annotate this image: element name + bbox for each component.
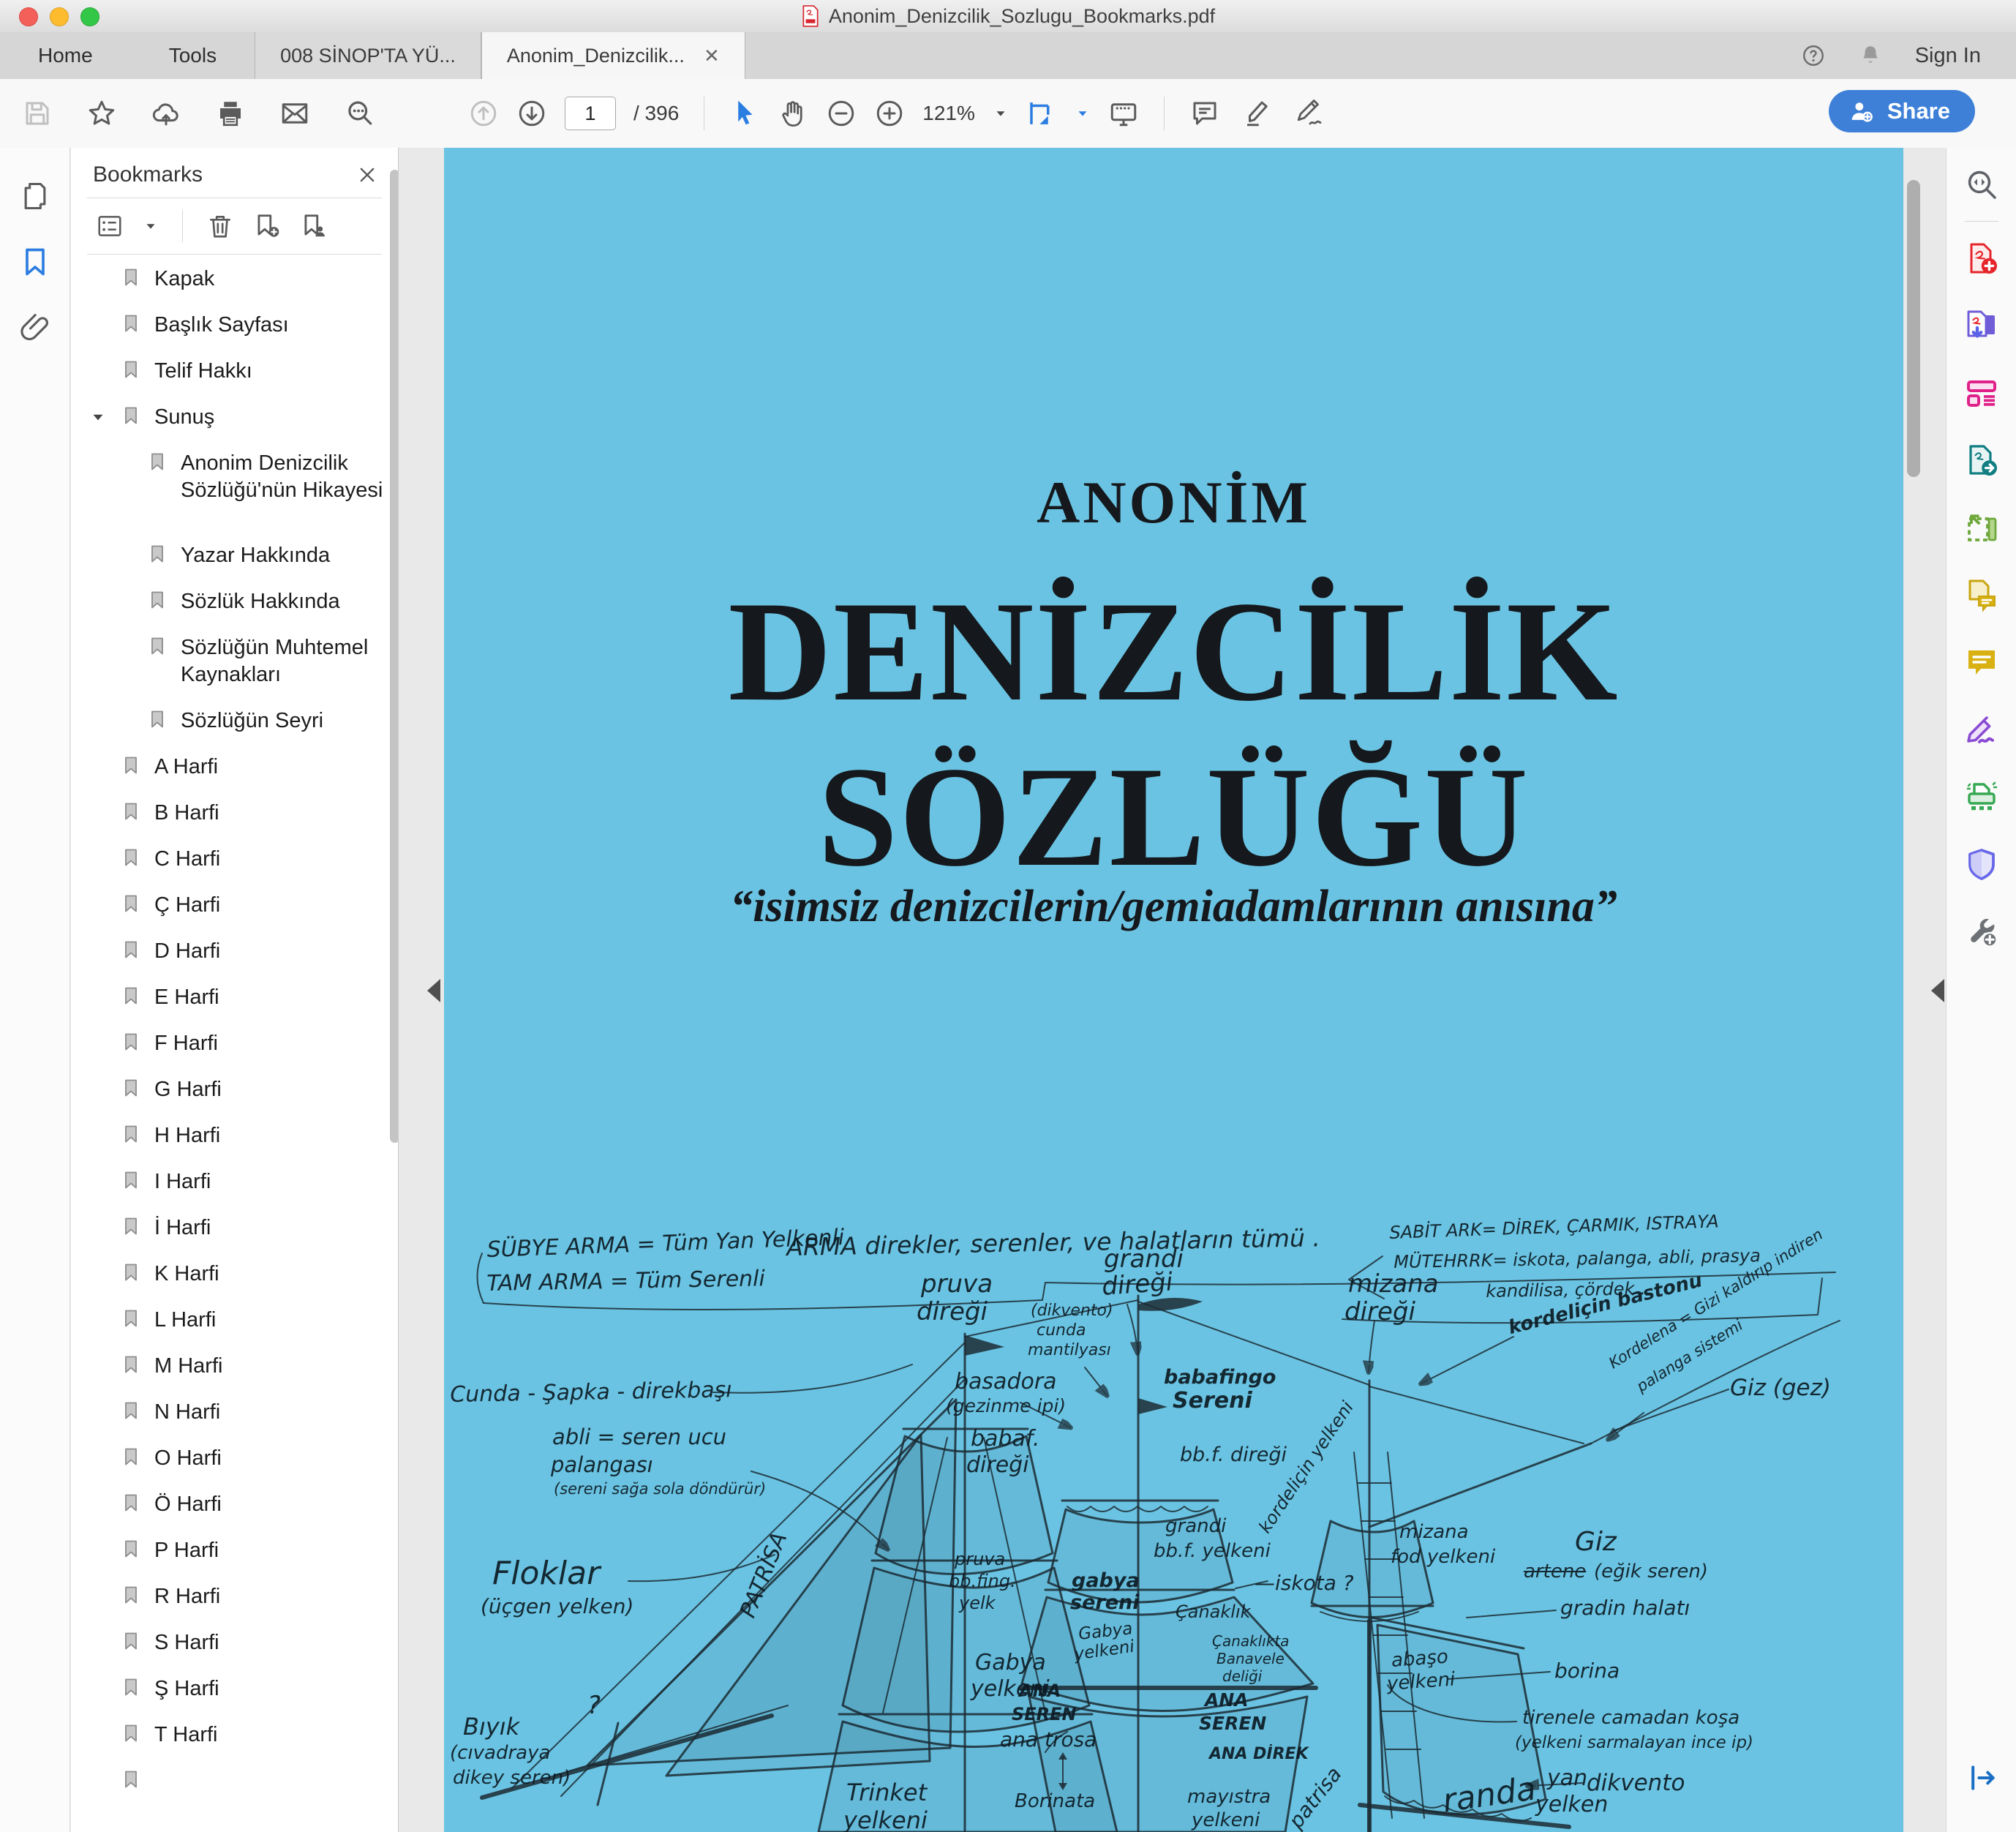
comment-icon[interactable] bbox=[1189, 98, 1220, 129]
divider bbox=[1164, 97, 1165, 130]
collapse-left-panel-handle[interactable] bbox=[427, 979, 440, 1002]
cover-subtitle: “isimsiz denizcilerin/gemiadamlarının an… bbox=[444, 881, 1903, 933]
bookmark-item[interactable]: H Harfi bbox=[71, 1113, 398, 1159]
bookmark-icon bbox=[147, 636, 168, 659]
bookmark-icon bbox=[121, 1539, 141, 1562]
sketch-label: bb.fing. bbox=[949, 1571, 1016, 1591]
bookmark-item[interactable]: D Harfi bbox=[71, 928, 398, 975]
bookmark-icon bbox=[121, 1262, 141, 1285]
sketch-label: mantilyası bbox=[1028, 1341, 1111, 1359]
notifications-bell-icon[interactable] bbox=[1858, 43, 1883, 68]
sketch-label: patrisa bbox=[1284, 1762, 1347, 1832]
sketch-label: SEREN bbox=[1012, 1704, 1077, 1724]
bookmark-icon bbox=[121, 1170, 141, 1193]
document-area: ANONİM DENİZCİLİK SÖZLÜĞÜ “isimsiz deniz… bbox=[399, 148, 1946, 1832]
bookmark-label: O Harfi bbox=[154, 1445, 222, 1472]
sketch-label: Borinata bbox=[1015, 1790, 1095, 1812]
bookmark-label: Sözlük Hakkında bbox=[181, 588, 340, 615]
bookmark-item[interactable]: Ç Harfi bbox=[71, 882, 398, 928]
fill-sign-icon[interactable] bbox=[1964, 712, 1999, 747]
sketch-label: ARMA direkler, serenler, ve halatların t… bbox=[786, 1223, 1320, 1261]
bookmark-icon bbox=[121, 359, 141, 383]
fit-menu-caret-icon[interactable] bbox=[1075, 105, 1091, 121]
sketch-label: pruva bbox=[955, 1549, 1005, 1569]
bookmark-icon bbox=[121, 1769, 141, 1792]
bookmark-icon bbox=[121, 1400, 141, 1424]
bookmark-item[interactable]: Ş Harfi bbox=[71, 1666, 398, 1712]
sketch-label: grandi bbox=[1165, 1515, 1226, 1537]
sketch-label: direği bbox=[917, 1297, 988, 1326]
print-icon[interactable] bbox=[215, 98, 246, 129]
sketch-label: abaşo bbox=[1391, 1646, 1449, 1672]
bookmark-label: K Harfi bbox=[154, 1261, 219, 1288]
bookmark-icon bbox=[147, 590, 168, 613]
select-tool-button[interactable] bbox=[729, 98, 760, 129]
sketch-label: borina bbox=[1554, 1659, 1620, 1683]
document-tabs: 008 SİNOP'TA YÜ...Anonim_Denizcilik...✕ bbox=[255, 32, 745, 79]
bookmark-item[interactable]: A Harfi bbox=[71, 744, 398, 790]
bookmark-icon bbox=[121, 1493, 141, 1516]
sketch-label: —iskota ? bbox=[1255, 1571, 1354, 1595]
cover-title-line1: DENİZCİLİK bbox=[444, 569, 1903, 734]
bookmark-label: L Harfi bbox=[154, 1307, 216, 1334]
bookmark-item[interactable]: N Harfi bbox=[71, 1389, 398, 1435]
chevron-down-icon[interactable] bbox=[89, 408, 108, 427]
sketch-label: yelkeni bbox=[1386, 1668, 1456, 1694]
sketch-label: gradin halatı bbox=[1560, 1596, 1690, 1620]
sketch-label: direği bbox=[1344, 1297, 1415, 1326]
find-tools-icon[interactable] bbox=[1964, 167, 1999, 202]
export-pdf-icon[interactable] bbox=[1964, 308, 1999, 343]
bookmark-item[interactable]: O Harfi bbox=[71, 1435, 398, 1482]
bookmark-label: Ç Harfi bbox=[154, 892, 220, 919]
sketch-label: Floklar bbox=[492, 1555, 600, 1592]
bookmark-list: KapakBaşlık SayfasıTelif HakkıSunuşAnoni… bbox=[71, 255, 398, 1802]
bookmark-item[interactable]: Sözlüğün Seyri bbox=[71, 698, 398, 744]
cover-title-line2: SÖZLÜĞÜ bbox=[444, 735, 1903, 899]
bookmark-item[interactable]: E Harfi bbox=[71, 975, 398, 1021]
chevron-down-icon bbox=[143, 218, 159, 234]
bookmark-label: C Harfi bbox=[154, 846, 220, 873]
close-tab-icon[interactable]: ✕ bbox=[704, 46, 720, 65]
sketch-label: tirenele camadan koşa bbox=[1522, 1707, 1739, 1729]
bookmark-icon bbox=[121, 755, 141, 778]
sketch-label: palangası bbox=[551, 1452, 653, 1477]
sketch-label: TAM ARMA = Tüm Serenli bbox=[486, 1266, 765, 1296]
open-tools-pane-icon[interactable] bbox=[1966, 1762, 1998, 1794]
bookmarks-panel-title: Bookmarks bbox=[93, 162, 203, 187]
bookmark-label: D Harfi bbox=[154, 938, 220, 965]
sketch-label: ANA bbox=[1019, 1681, 1061, 1701]
bookmark-item[interactable]: Sözlüğün Muhtemel Kaynakları bbox=[71, 625, 398, 698]
sketch-label: yelkeni bbox=[1192, 1809, 1260, 1831]
sketch-label: Çanaklıkta bbox=[1212, 1632, 1290, 1650]
bookmark-item[interactable]: L Harfi bbox=[71, 1297, 398, 1343]
sketch-label: ? bbox=[587, 1691, 601, 1720]
bookmark-label: R Harfi bbox=[154, 1583, 220, 1610]
sketch-label: pruva bbox=[921, 1269, 993, 1299]
edit-pdf-icon[interactable] bbox=[1964, 375, 1999, 410]
zoom-out-button[interactable] bbox=[826, 98, 857, 129]
sketch-label: dikey seren) bbox=[453, 1767, 571, 1789]
bookmark-item[interactable] bbox=[71, 1758, 398, 1802]
document-scrollbar-thumb[interactable] bbox=[1907, 180, 1920, 477]
tab-bar: Home Tools 008 SİNOP'TA YÜ...Anonim_Deni… bbox=[0, 32, 2016, 80]
window-titlebar: Anonim_Denizcilik_Sozlugu_Bookmarks.pdf bbox=[0, 0, 2016, 33]
sketch-label: Giz bbox=[1575, 1527, 1617, 1557]
main-toolbar: / 396 121% Share bbox=[0, 79, 2016, 149]
bookmark-icon bbox=[147, 451, 168, 475]
bookmark-label: E Harfi bbox=[154, 984, 219, 1011]
delete-bookmark-icon[interactable] bbox=[206, 212, 234, 240]
divider bbox=[1965, 221, 1998, 222]
sketch-label: SABİT ARK= DİREK, ÇARMIK, ISTRAYA bbox=[1389, 1211, 1719, 1243]
bookmark-item[interactable]: Yazar Hakkında bbox=[71, 533, 398, 579]
bookmark-icon bbox=[121, 1216, 141, 1239]
bookmark-label: B Harfi bbox=[154, 800, 219, 827]
tab-home[interactable]: Home bbox=[0, 32, 131, 79]
bookmark-label: Telif Hakkı bbox=[154, 358, 252, 385]
bookmark-icon bbox=[121, 1078, 141, 1101]
sketch-label: randa bbox=[1440, 1770, 1538, 1820]
help-icon[interactable] bbox=[1801, 43, 1826, 68]
zoom-level-value[interactable]: 121% bbox=[922, 102, 975, 125]
bookmark-item[interactable]: T Harfi bbox=[71, 1712, 398, 1758]
bookmark-item[interactable]: R Harfi bbox=[71, 1574, 398, 1620]
comments-icon[interactable] bbox=[1964, 645, 1999, 680]
bookmark-label: Kapak bbox=[154, 266, 214, 293]
bookmark-item[interactable]: P Harfi bbox=[71, 1528, 398, 1574]
bookmark-item[interactable]: F Harfi bbox=[71, 1021, 398, 1067]
document-tab[interactable]: 008 SİNOP'TA YÜ... bbox=[255, 32, 481, 79]
bookmark-icon bbox=[121, 847, 141, 871]
bookmarks-icon[interactable] bbox=[19, 246, 51, 278]
bookmark-icon bbox=[121, 267, 141, 290]
bookmark-item[interactable]: Sözlük Hakkında bbox=[71, 579, 398, 625]
window-title: Anonim_Denizcilik_Sozlugu_Bookmarks.pdf bbox=[829, 5, 1215, 28]
bookmark-item[interactable]: Başlık Sayfası bbox=[71, 302, 398, 348]
sketch-label: ANA DİREK bbox=[1209, 1745, 1309, 1763]
document-tab-label: Anonim_Denizcilik... bbox=[507, 45, 685, 67]
close-panel-icon[interactable] bbox=[357, 165, 377, 185]
sketch-label: cunda bbox=[1037, 1321, 1086, 1340]
page-number-input[interactable] bbox=[565, 97, 616, 130]
sketch-label: (eğik seren) bbox=[1594, 1561, 1708, 1583]
sketch-label: yan bbox=[1547, 1765, 1587, 1791]
sketch-label: SEREN bbox=[1199, 1713, 1266, 1734]
create-pdf-icon[interactable] bbox=[1964, 241, 1999, 276]
panel-scrollbar-thumb[interactable] bbox=[390, 170, 399, 1143]
bookmark-item[interactable]: M Harfi bbox=[71, 1343, 398, 1389]
share-person-icon bbox=[1848, 97, 1876, 125]
sketch-label: mizana bbox=[1348, 1269, 1439, 1299]
pdf-page: ANONİM DENİZCİLİK SÖZLÜĞÜ “isimsiz deniz… bbox=[444, 148, 1903, 1832]
bookmark-label: P Harfi bbox=[154, 1537, 219, 1564]
sketch-label: bb.f. yelkeni bbox=[1154, 1540, 1271, 1562]
bookmark-icon bbox=[121, 313, 141, 337]
sketch-label: basadora bbox=[955, 1369, 1057, 1394]
more-tools-icon[interactable] bbox=[1964, 914, 1999, 949]
acrobat-window: Anonim_Denizcilik_Sozlugu_Bookmarks.pdf … bbox=[0, 0, 2016, 1832]
document-tab-label: 008 SİNOP'TA YÜ... bbox=[280, 45, 456, 67]
sketch-label: Banavele bbox=[1216, 1650, 1285, 1667]
email-icon[interactable] bbox=[279, 98, 310, 129]
bookmark-label: H Harfi bbox=[154, 1122, 220, 1149]
bookmark-icon bbox=[121, 1308, 141, 1332]
bookmark-label: F Harfi bbox=[154, 1030, 218, 1057]
divider bbox=[182, 210, 183, 242]
ship-diagram: SÜBYE ARMA = Tüm Yan YelkenliTAM ARMA = … bbox=[444, 1211, 1903, 1832]
save-icon[interactable] bbox=[22, 98, 53, 129]
bookmark-icon bbox=[121, 1723, 141, 1746]
bookmark-label: Başlık Sayfası bbox=[154, 312, 289, 339]
send-for-comments-icon[interactable] bbox=[1964, 577, 1999, 612]
sketch-label: direği bbox=[966, 1452, 1029, 1478]
bookmark-settings-icon[interactable] bbox=[300, 212, 328, 240]
bookmarks-panel: Bookmarks KapakBaşlık SayfasıTelif Hakkı… bbox=[71, 148, 399, 1832]
hand-tool-button[interactable] bbox=[778, 98, 808, 129]
sketch-label: (cıvadraya bbox=[450, 1742, 550, 1764]
sketch-label: yelken bbox=[1535, 1792, 1608, 1817]
organize-pages-icon[interactable] bbox=[1964, 510, 1999, 545]
fit-width-button[interactable] bbox=[1026, 98, 1057, 129]
sketch-label: Sereni bbox=[1173, 1388, 1252, 1414]
sketch-label: ana trosa bbox=[1000, 1727, 1097, 1752]
sketch-label: babaf. bbox=[971, 1426, 1039, 1452]
bookmark-item[interactable]: Telif Hakkı bbox=[71, 348, 398, 394]
bookmark-label: Sözlüğün Seyri bbox=[181, 707, 323, 735]
sketch-label: ANA bbox=[1205, 1689, 1249, 1711]
sketch-label: fod yelkeni bbox=[1391, 1546, 1495, 1568]
ship-diagram-labels: SÜBYE ARMA = Tüm Yan YelkenliTAM ARMA = … bbox=[444, 1211, 1903, 1832]
pdf-file-icon bbox=[801, 5, 820, 27]
bookmark-icon bbox=[147, 544, 168, 567]
bookmark-item[interactable]: C Harfi bbox=[71, 836, 398, 882]
bookmark-item[interactable]: İ Harfi bbox=[71, 1205, 398, 1251]
tab-tools[interactable]: Tools bbox=[131, 32, 255, 79]
bookmark-icon bbox=[121, 939, 141, 963]
sketch-label: (gezinme ipi) bbox=[946, 1395, 1066, 1416]
sketch-label: palanga sistemi bbox=[1633, 1316, 1746, 1395]
bookmark-label: G Harfi bbox=[154, 1076, 222, 1103]
sketch-label: bb.f. direği bbox=[1180, 1444, 1287, 1466]
bookmark-item[interactable]: Anonim Denizcilik Sözlüğü'nün Hikayesi bbox=[71, 440, 398, 514]
sketch-label: yelk bbox=[959, 1593, 996, 1613]
bookmark-item[interactable]: S Harfi bbox=[71, 1620, 398, 1666]
bookmark-item[interactable]: K Harfi bbox=[71, 1251, 398, 1297]
sketch-label: deliği bbox=[1222, 1667, 1262, 1685]
bookmark-label: S Harfi bbox=[154, 1629, 219, 1656]
attachments-icon[interactable] bbox=[19, 312, 51, 344]
left-navigation-rail bbox=[0, 148, 70, 1832]
read-mode-button[interactable] bbox=[1108, 98, 1139, 129]
page-count-label: / 396 bbox=[633, 102, 679, 125]
bookmark-label: T Harfi bbox=[154, 1722, 217, 1749]
sketch-label: Giz (gez) bbox=[1730, 1375, 1831, 1401]
sketch-label: Trinket bbox=[846, 1779, 927, 1806]
bookmark-label: Sözlüğün Muhtemel Kaynakları bbox=[181, 634, 386, 688]
expand-right-panel-handle[interactable] bbox=[1931, 979, 1944, 1002]
sketch-label: direği bbox=[1101, 1267, 1174, 1302]
sketch-label: artene bbox=[1524, 1561, 1586, 1583]
sketch-label: (üçgen yelken) bbox=[481, 1594, 633, 1618]
sketch-label: (dikvento) bbox=[1031, 1302, 1113, 1320]
bookmark-item[interactable]: G Harfi bbox=[71, 1067, 398, 1113]
sketch-label: MÜTEHRRK= iskota, palanga, abli, prasya bbox=[1393, 1245, 1761, 1272]
bookmark-icon bbox=[121, 1354, 141, 1378]
bookmark-icon bbox=[121, 1677, 141, 1700]
bookmark-icon bbox=[121, 986, 141, 1009]
bookmark-label: Sunuş bbox=[154, 404, 214, 431]
bookmark-item[interactable]: I Harfi bbox=[71, 1159, 398, 1205]
sketch-label: (sereni sağa sola döndürür) bbox=[554, 1480, 766, 1498]
sketch-label: kordeliçin yelkeni bbox=[1255, 1397, 1358, 1536]
cover-kicker: ANONİM bbox=[444, 468, 1903, 537]
bookmark-icon bbox=[121, 1585, 141, 1608]
bookmark-icon bbox=[121, 801, 141, 825]
bookmark-label: N Harfi bbox=[154, 1399, 220, 1426]
bookmark-icon bbox=[121, 893, 141, 917]
sign-in-button[interactable]: Sign In bbox=[1915, 44, 1981, 68]
sketch-label: mayıstra bbox=[1187, 1786, 1271, 1808]
send-pdf-icon[interactable] bbox=[1964, 443, 1999, 478]
sketch-label: PATRİSA bbox=[735, 1528, 792, 1621]
sketch-label: gabya bbox=[1072, 1569, 1140, 1592]
bookmark-label: Anonim Denizcilik Sözlüğü'nün Hikayesi bbox=[181, 450, 386, 504]
previous-page-button[interactable] bbox=[468, 98, 499, 129]
bookmark-icon bbox=[121, 1124, 141, 1147]
bookmark-icon bbox=[147, 709, 168, 732]
sketch-label: abli = seren ucu bbox=[552, 1424, 726, 1449]
search-icon[interactable] bbox=[344, 98, 375, 129]
divider bbox=[704, 97, 704, 130]
tools-rail bbox=[1946, 148, 2016, 1832]
share-button[interactable]: Share bbox=[1829, 90, 1975, 132]
add-bookmark-icon[interactable] bbox=[253, 212, 281, 240]
protect-icon[interactable] bbox=[1964, 846, 1999, 882]
sketch-label: sereni bbox=[1070, 1591, 1140, 1614]
sketch-label: Bıyık bbox=[463, 1713, 519, 1741]
bookmark-label: Ö Harfi bbox=[154, 1491, 222, 1518]
bookmark-icon bbox=[121, 1032, 141, 1055]
sign-icon[interactable] bbox=[1295, 98, 1325, 129]
share-button-label: Share bbox=[1887, 98, 1950, 124]
bookmark-label: A Harfi bbox=[154, 754, 218, 781]
bookmark-label: I Harfi bbox=[154, 1168, 211, 1195]
sketch-label: (yelkeni sarmalayan ince ip) bbox=[1515, 1733, 1753, 1752]
bookmark-item[interactable]: Ö Harfi bbox=[71, 1482, 398, 1528]
bookmark-label: Ş Harfi bbox=[154, 1675, 219, 1703]
sketch-label: Gabya bbox=[975, 1650, 1046, 1675]
sketch-label: Çanaklık bbox=[1176, 1602, 1251, 1622]
bookmark-icon bbox=[121, 1446, 141, 1470]
sketch-label: yelkeni bbox=[843, 1806, 928, 1832]
bookmark-item[interactable]: B Harfi bbox=[71, 790, 398, 836]
cloud-upload-icon[interactable] bbox=[151, 98, 181, 129]
star-icon[interactable] bbox=[86, 98, 117, 129]
document-tab[interactable]: Anonim_Denizcilik...✕ bbox=[481, 32, 745, 80]
sketch-label: Cunda - Şapka - direkbaşı bbox=[450, 1377, 732, 1408]
bookmark-item[interactable]: Kapak bbox=[71, 256, 398, 302]
zoom-menu-caret-icon[interactable] bbox=[993, 105, 1009, 121]
bookmark-icon bbox=[121, 405, 141, 429]
highlighter-icon[interactable] bbox=[1242, 98, 1273, 129]
sketch-label: mizana bbox=[1399, 1521, 1469, 1543]
zoom-in-button[interactable] bbox=[874, 98, 905, 129]
scan-ocr-icon[interactable] bbox=[1964, 779, 1999, 814]
page-thumbnails-icon[interactable] bbox=[19, 180, 51, 212]
bookmark-label: M Harfi bbox=[154, 1353, 222, 1380]
bookmark-label: Yazar Hakkında bbox=[181, 542, 330, 569]
bookmark-options-icon[interactable] bbox=[96, 212, 124, 240]
bookmark-icon bbox=[121, 1631, 141, 1654]
sketch-label: babafingo bbox=[1164, 1366, 1276, 1389]
next-page-button[interactable] bbox=[516, 98, 547, 129]
bookmark-label: İ Harfi bbox=[154, 1215, 211, 1242]
bookmark-item[interactable]: Sunuş bbox=[71, 394, 398, 440]
